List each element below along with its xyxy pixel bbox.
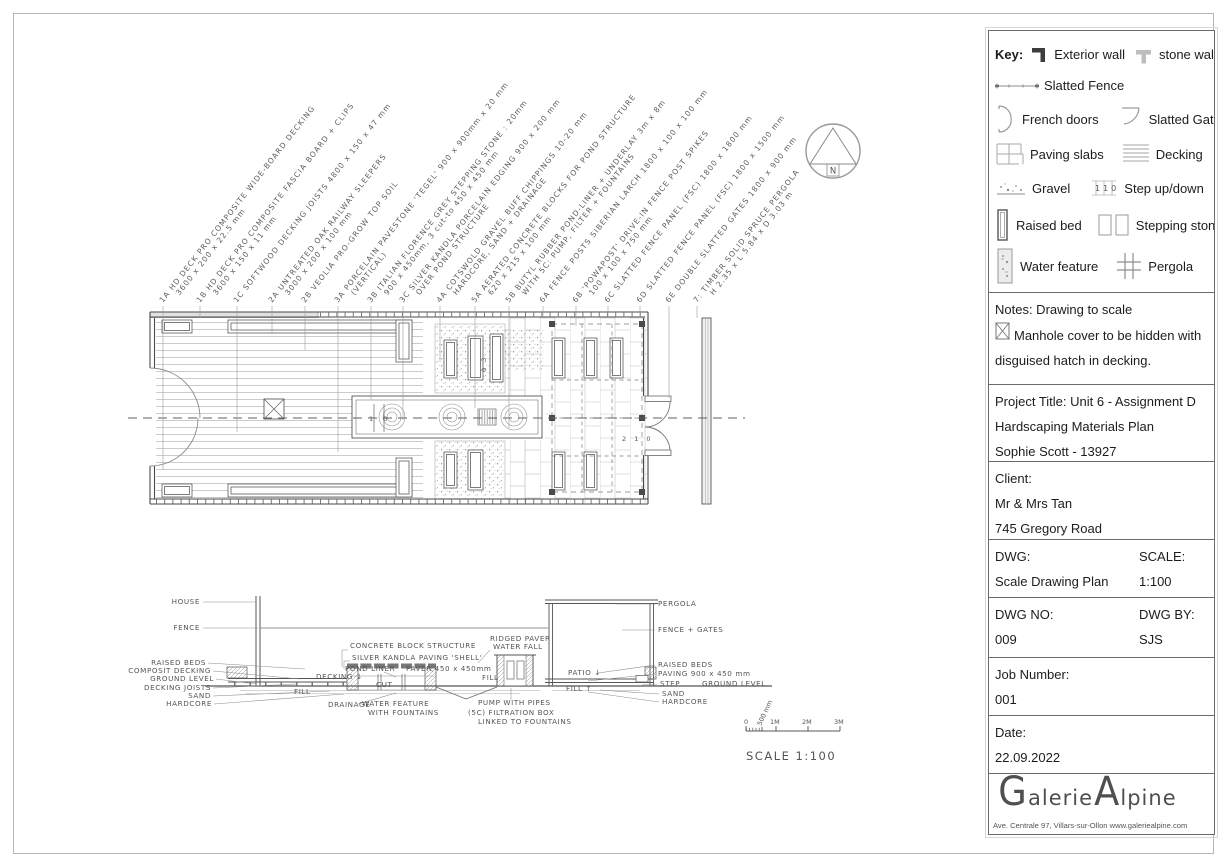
paving-area [505, 317, 545, 396]
label-ground-level-r: GROUND LEVEL [702, 679, 766, 688]
dwgby-value: SJS [1139, 627, 1195, 652]
stone-wall-icon [1134, 46, 1154, 64]
dwgno-label: DWG NO: [995, 602, 1054, 627]
label-decking-arrow: DECKING ↓ [316, 672, 363, 681]
dwg-section: DWG: Scale Drawing Plan SCALE: 1:100 [989, 540, 1214, 598]
scale-tick-2: 2M [802, 718, 812, 726]
decking-icon [1121, 143, 1151, 165]
label-fill: FILL [482, 673, 499, 682]
key-label: Pergola [1148, 259, 1193, 274]
slatted-gates-plan [645, 396, 671, 456]
scale-tick-3: 3M [834, 718, 844, 726]
project-title-line: Hardscaping Materials Plan [995, 414, 1208, 439]
label-fence: FENCE [173, 623, 200, 632]
svg-text:1B HD DECK PRO COMPOSITE FASC: 1B HD DECK PRO COMPOSITE FASCIA BOARD + … [194, 101, 362, 309]
label-water-fall: WATER FALL [493, 642, 543, 651]
key-label: Step up/down [1124, 181, 1204, 196]
key-label: Slatted Fence [1044, 78, 1124, 93]
client-name: Mr & Mrs Tan [995, 491, 1208, 516]
section-labels-left: HOUSE FENCE RAISED BEDS COMPOSIT DECKING… [128, 597, 214, 708]
label-paving: PAVING 900 x 450 mm [658, 669, 751, 678]
north-arrow-icon: N [806, 124, 860, 178]
key-label: Slatted Gates [1149, 112, 1214, 127]
step-up-down-icon: 110 [1089, 177, 1119, 199]
label-fill: FILL [294, 687, 311, 696]
section-labels-right: PERGOLA FENCE + GATES RAISED BEDS PAVING… [658, 599, 766, 706]
paving-slabs-icon [995, 142, 1025, 166]
gravel-icon [995, 178, 1027, 198]
key-label: stone wall [1159, 47, 1214, 62]
material-label: 1B HD DECK PRO COMPOSITE FASCIA BOARD + … [194, 101, 355, 304]
slatted-fence-icon [995, 80, 1039, 92]
company-logo: Galerie Alpine [997, 774, 1177, 812]
scale-tick-1: 1M [770, 718, 780, 726]
dwg-value: Scale Drawing Plan [995, 569, 1108, 594]
project-author-line: Sophie Scott - 13927 [995, 439, 1208, 462]
key-label: Exterior wall [1054, 47, 1125, 62]
scale-caption: SCALE 1:100 [746, 749, 836, 763]
label-filtration: (5C) FILTRATION BOX [468, 708, 554, 717]
plan-view: 1 0 0 3 2 1 0 [128, 312, 745, 504]
step-marker-mid: 0 3 [480, 356, 488, 372]
company-address: Ave. Centrale 97, Villars-sur-Ollon www.… [993, 821, 1187, 830]
scale-tick-0: 0 [744, 718, 748, 726]
client-address: 745 Gregory Road [995, 516, 1208, 540]
notes-line: Notes: Drawing to scale [995, 297, 1208, 322]
exterior-wall-icon [1029, 45, 1049, 65]
project-title-line: Project Title: Unit 6 - Assignment D [995, 389, 1208, 414]
key-label: Stepping stone [1136, 218, 1214, 233]
label-fence-gates: FENCE + GATES [658, 625, 723, 634]
scale-bar: 0 500 mm 1M 2M 3M SCALE 1:100 [744, 699, 844, 763]
material-label: 7: TIMBER SOLID SPRUCE PERGOLA [691, 167, 801, 304]
dwgno-section: DWG NO: 009 DWG BY: SJS [989, 598, 1214, 658]
pergola-frame [545, 600, 658, 686]
label-with-fountains: WITH FOUNTAINS [368, 708, 439, 717]
drawing-canvas: 1 0 0 3 2 1 0 N 1A HD DECK PRO COMPOSITE… [0, 0, 985, 867]
scale-value: 1:100 [1139, 569, 1185, 594]
logo-section: Galerie Alpine Ave. Centrale 97, Villars… [989, 774, 1214, 832]
raised-bed-icon [995, 208, 1011, 242]
key-title: Key: [995, 47, 1023, 62]
boundary-wall-right [702, 318, 711, 504]
label-pump: PUMP WITH PIPES [478, 698, 551, 707]
client-section: Client: Mr & Mrs Tan 745 Gregory Road [989, 462, 1214, 540]
dwgno-value: 009 [995, 627, 1054, 652]
label-house: HOUSE [172, 597, 200, 606]
house-line [256, 596, 260, 686]
project-title-section: Project Title: Unit 6 - Assignment D Har… [989, 385, 1214, 462]
notes-line: Manhole cover to be hidden with [1014, 323, 1201, 348]
date-value: 22.09.2022 [995, 745, 1208, 770]
job-number-section: Job Number: 001 [989, 658, 1214, 716]
notes-line: disguised hatch in decking. [995, 348, 1208, 373]
step-marker-left: 1 0 [369, 415, 391, 423]
client-label: Client: [995, 466, 1208, 491]
manhole-icon [995, 322, 1010, 348]
label-kandla: SILVER KANDLA PAVING 'SHELL' [352, 653, 482, 662]
label-concrete: CONCRETE BLOCK STRUCTURE [350, 641, 476, 650]
svg-text:N: N [830, 167, 836, 177]
label-pergola: PERGOLA [658, 599, 696, 608]
pump-section [494, 655, 536, 686]
job-label: Job Number: [995, 662, 1208, 687]
label-water-feature: WATER FEATURE [362, 699, 429, 708]
step-block [636, 676, 648, 683]
key-label: Raised bed [1016, 218, 1082, 233]
label-paver: PAVER 450 x 450mm [406, 664, 492, 673]
french-doors-icon [995, 104, 1017, 134]
job-value: 001 [995, 687, 1208, 712]
key-label: French doors [1022, 112, 1099, 127]
dwg-label: DWG: [995, 544, 1108, 569]
label-step: STEP [660, 679, 680, 688]
section-view: HOUSE FENCE RAISED BEDS COMPOSIT DECKING… [128, 596, 772, 726]
date-label: Date: [995, 720, 1208, 745]
scale-label: SCALE: [1139, 544, 1185, 569]
label-hardcore: HARDCORE [166, 699, 212, 708]
material-labels: 1A HD DECK PRO COMPOSITE WIDE-BOARD DECK… [157, 80, 807, 309]
water-feature-icon [995, 247, 1015, 285]
pergola-icon [1115, 251, 1143, 281]
key-label: Decking [1156, 147, 1203, 162]
stepping-stone-icon [1097, 212, 1131, 238]
date-section: Date: 22.09.2022 [989, 716, 1214, 774]
key-label: Gravel [1032, 181, 1070, 196]
label-cut: CUT [376, 680, 392, 689]
section-labels-middle: CONCRETE BLOCK STRUCTURE SILVER KANDLA P… [294, 634, 601, 726]
key-label: Paving slabs [1030, 147, 1104, 162]
label-patio-arrow: PATIO ↓ [568, 668, 601, 677]
manhole-cover [264, 399, 284, 419]
label-fill: FILL ↑ [566, 684, 592, 693]
label-raised-beds-r: RAISED BEDS [658, 660, 713, 669]
label-hardcore-r: HARDCORE [662, 697, 708, 706]
step-marker-right: 2 1 0 [622, 435, 654, 443]
key-section: Key: Exterior wall stone wall Slatted Fe… [989, 31, 1214, 293]
label-ground-level: GROUND LEVEL [150, 674, 214, 683]
dwgby-label: DWG BY: [1139, 602, 1195, 627]
label-linked: LINKED TO FOUNTAINS [478, 717, 572, 726]
slatted-gates-icon [1120, 105, 1144, 133]
title-block: Key: Exterior wall stone wall Slatted Fe… [988, 30, 1215, 835]
notes-section: Notes: Drawing to scale Manhole cover to… [989, 293, 1214, 385]
key-label: Water feature [1020, 259, 1098, 274]
svg-text:110: 110 [1095, 184, 1119, 193]
